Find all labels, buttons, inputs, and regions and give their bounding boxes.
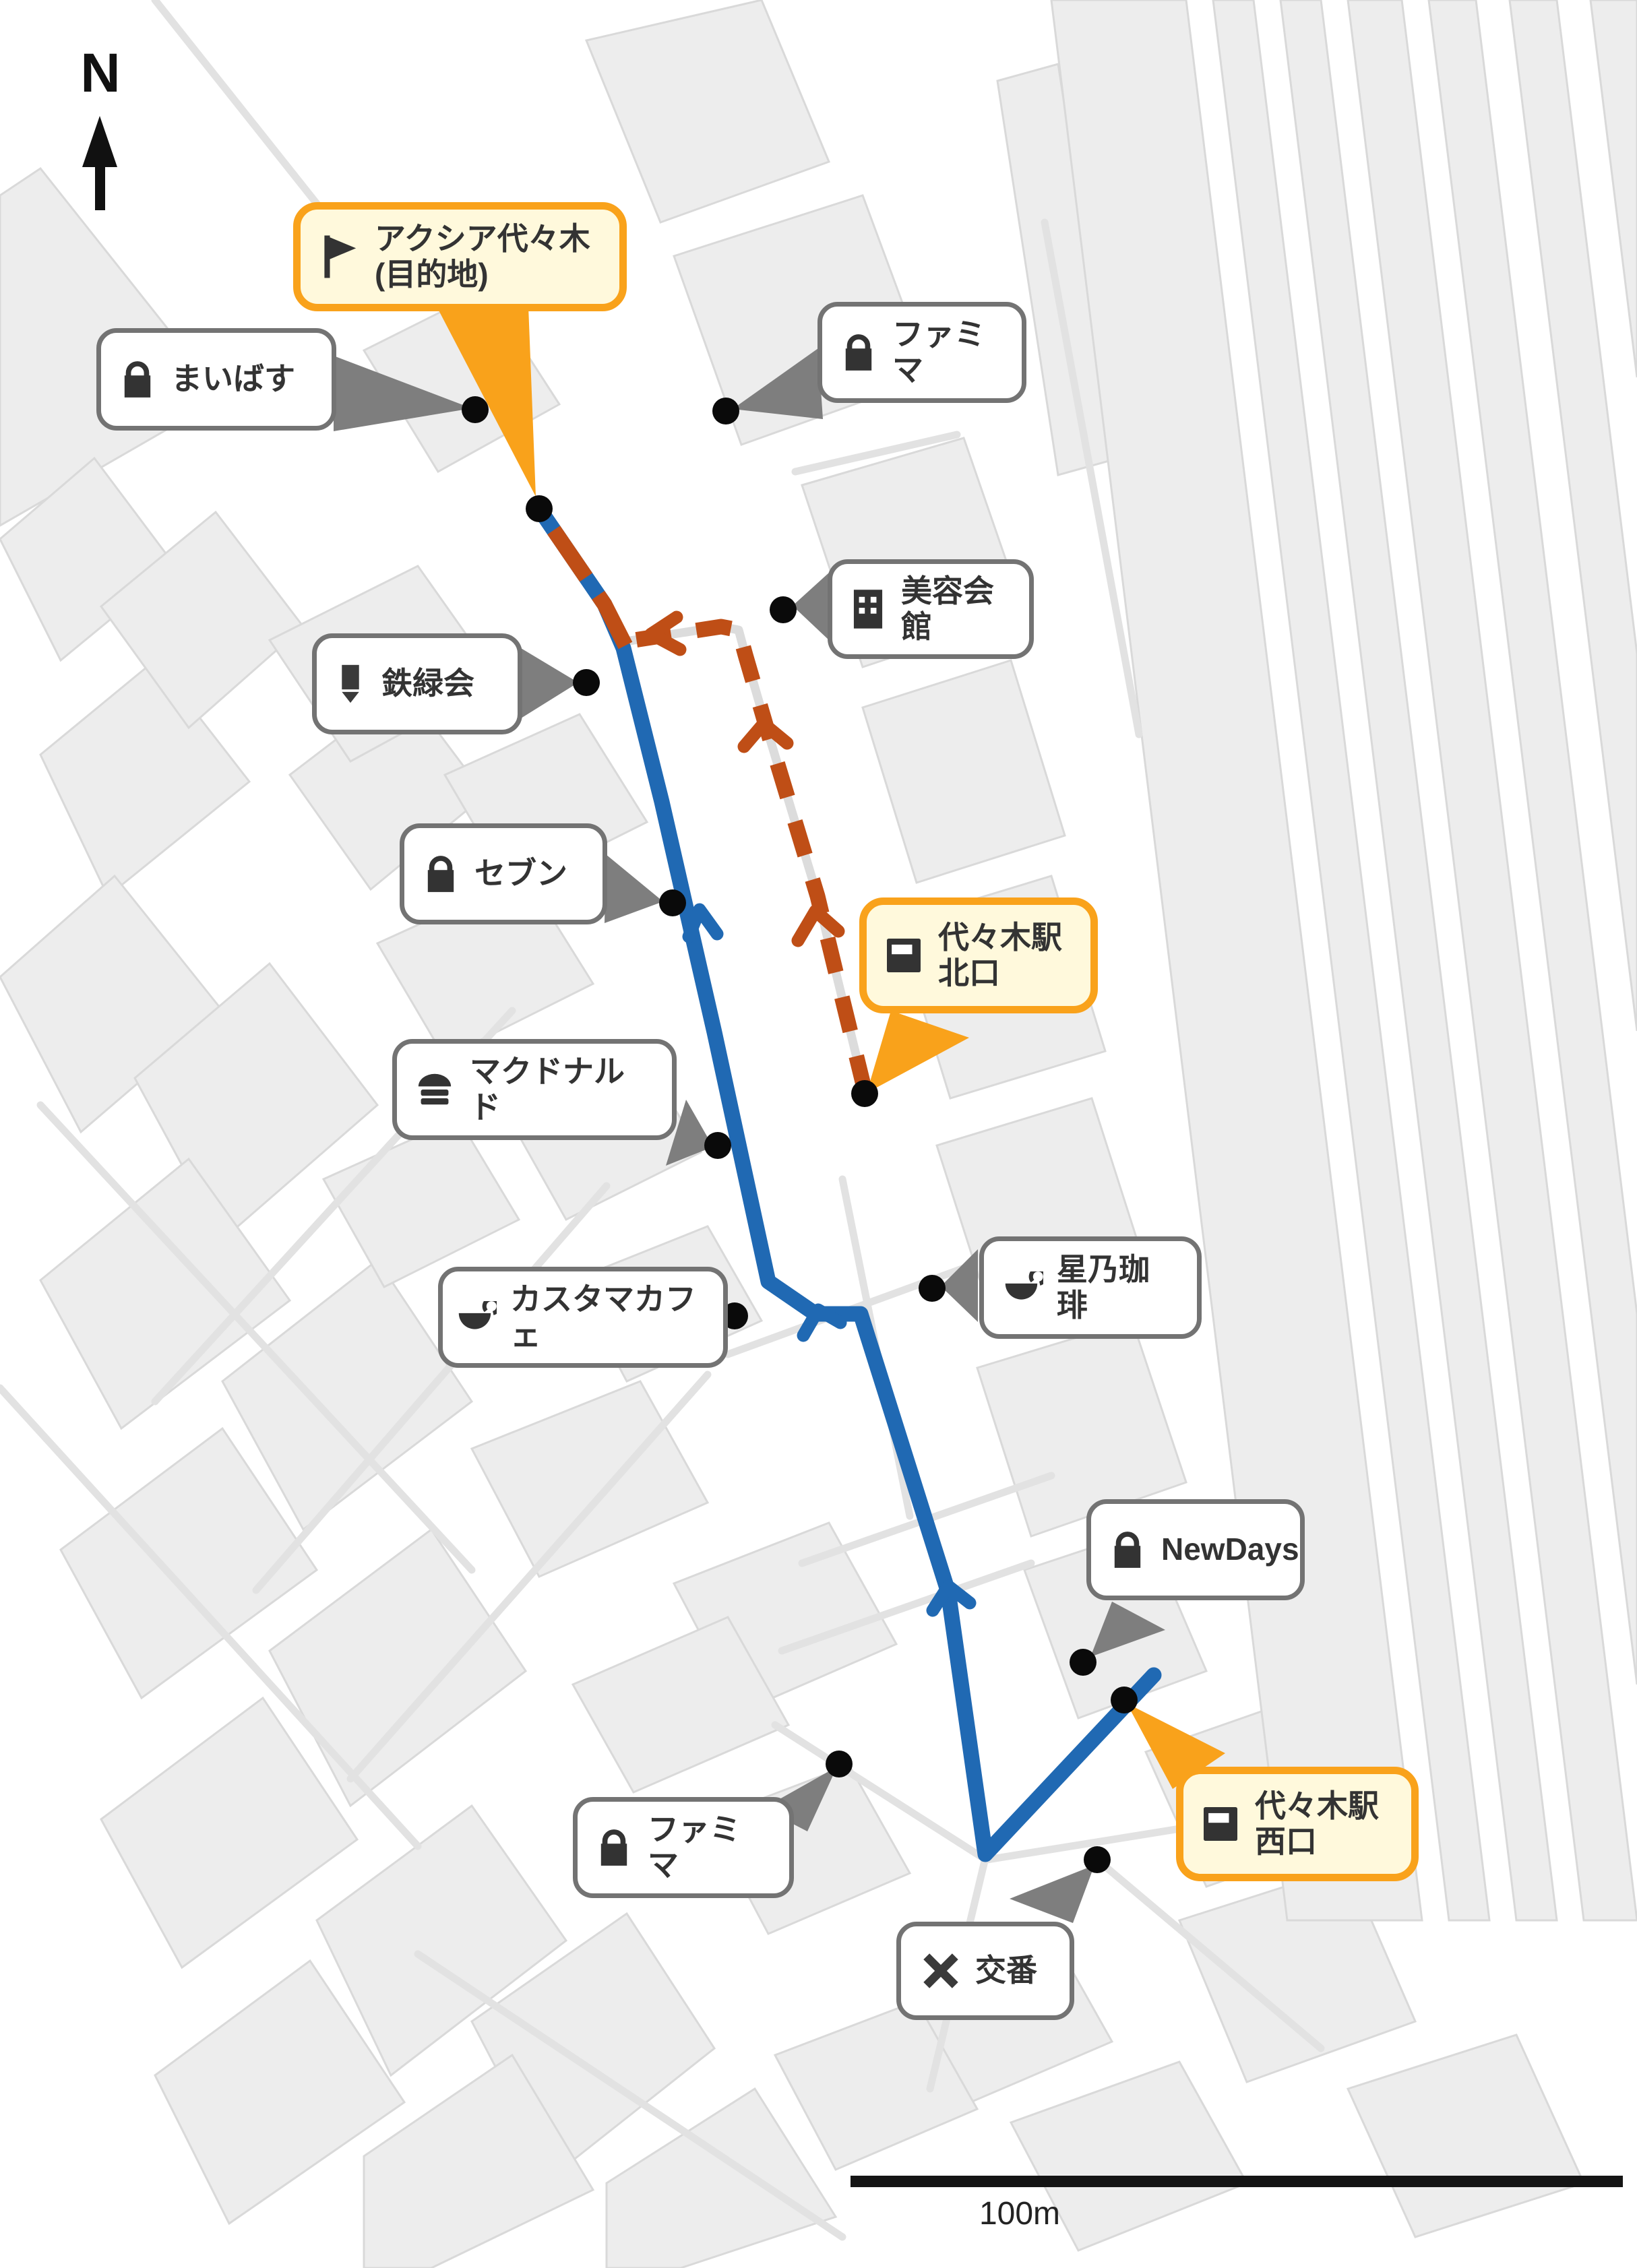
- west-exit-dot: [1111, 1687, 1138, 1713]
- shop-icon: [121, 358, 154, 400]
- biyo-kaikan-dot: [770, 596, 797, 623]
- label-customa-cafe: カスタマカフェ: [438, 1267, 728, 1368]
- label-yoyogi-west-exit-text: 代々木駅 西口: [1255, 1788, 1379, 1860]
- station-icon: [1204, 1807, 1237, 1841]
- biyo-kaikan-pointer: [793, 573, 829, 640]
- seven-pointer: [605, 854, 663, 923]
- destination-dot: [526, 495, 553, 522]
- label-koban: 交番: [896, 1922, 1074, 2020]
- mcdonalds-dot: [704, 1132, 731, 1159]
- label-famima-south-text: ファミマ: [648, 1812, 769, 1884]
- label-famima-north: ファミマ: [817, 302, 1026, 403]
- north-exit-dot: [851, 1080, 878, 1107]
- tetsuryokukai-pointer: [521, 648, 578, 718]
- scale-bar: [851, 2176, 1623, 2187]
- shop-icon: [598, 1827, 630, 1868]
- x-icon: [921, 1951, 960, 1990]
- burger-icon: [417, 1072, 452, 1107]
- famima-south-dot: [826, 1751, 853, 1777]
- label-maibasu: まいばす: [96, 328, 336, 431]
- station-icon: [887, 939, 921, 972]
- label-customa-cafe-text: カスタマカフェ: [510, 1282, 708, 1354]
- shop-icon: [842, 332, 875, 373]
- north-arrow-icon: [82, 116, 117, 210]
- koban-pointer: [1010, 1865, 1094, 1923]
- label-destination: アクシア代々木 (目的地): [293, 202, 627, 311]
- hoshino-dot: [919, 1275, 946, 1302]
- alt-route-underlay: [625, 627, 865, 1090]
- label-koban-text: 交番: [975, 1953, 1037, 1988]
- label-maibasu-text: まいばす: [171, 361, 295, 397]
- label-biyo-kaikan: 美容会館: [828, 559, 1034, 659]
- label-yoyogi-west-exit: 代々木駅 西口: [1176, 1767, 1419, 1881]
- label-mcdonalds: マクドナルド: [392, 1039, 677, 1140]
- alt-route-arrow: [798, 911, 838, 941]
- label-hoshino-coffee-text: 星乃珈琲: [1057, 1252, 1177, 1324]
- walk-route-arrow: [689, 910, 717, 937]
- label-newdays-text: NewDays: [1161, 1532, 1299, 1567]
- label-yoyogi-north-exit-text: 代々木駅 北口: [938, 920, 1062, 992]
- compass-north-label: N: [70, 42, 131, 105]
- coffee-icon: [458, 1301, 497, 1333]
- tetsuryokukai-dot: [573, 669, 600, 696]
- label-destination-text: アクシア代々木 (目的地): [375, 221, 590, 293]
- newdays-dot: [1070, 1649, 1097, 1676]
- seven-dot: [659, 889, 686, 916]
- scale-bar-label: 100m: [929, 2195, 1111, 2232]
- label-seven-text: セブン: [474, 856, 567, 891]
- label-mcdonalds-text: マクドナルド: [470, 1054, 652, 1126]
- shop-icon: [425, 853, 457, 895]
- label-tetsuryokukai: 鉄緑会: [312, 633, 522, 734]
- label-tetsuryokukai-text: 鉄緑会: [381, 666, 474, 701]
- alt-route-dashed-line: [625, 627, 865, 1090]
- label-biyo-kaikan-text: 美容会館: [901, 573, 1009, 645]
- koban-dot: [1084, 1846, 1111, 1873]
- hoshino-pointer: [941, 1249, 978, 1322]
- pencil-icon: [337, 662, 364, 705]
- label-famima-north-text: ファミマ: [892, 317, 1001, 389]
- route-map: N 100m アクシア代々木 (目的地) まいばす ファミマ 美容会館 鉄緑会 …: [0, 0, 1637, 2268]
- label-hoshino-coffee: 星乃珈琲: [979, 1236, 1202, 1339]
- famima-north-dot: [712, 398, 739, 424]
- coffee-icon: [1004, 1271, 1043, 1304]
- label-seven: セブン: [400, 823, 607, 924]
- maibasu-dot: [462, 396, 489, 423]
- label-yoyogi-north-exit: 代々木駅 北口: [859, 897, 1098, 1013]
- shop-icon: [1111, 1529, 1144, 1571]
- label-famima-south: ファミマ: [573, 1797, 794, 1898]
- flag-icon: [321, 233, 357, 280]
- label-newdays: NewDays: [1086, 1499, 1305, 1600]
- building-icon: [853, 589, 884, 629]
